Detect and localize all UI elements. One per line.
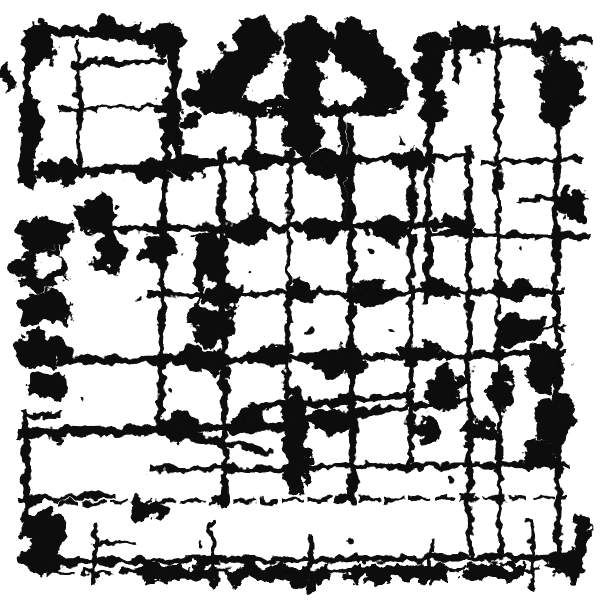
ink-speck (348, 538, 352, 542)
ink-blob (2, 66, 14, 94)
brush-stroke (430, 233, 586, 237)
brush-stroke (212, 525, 214, 586)
ink-speck (78, 398, 82, 402)
ink-speck (388, 328, 392, 332)
grunge-artwork (0, 0, 600, 600)
ink-blob (180, 112, 200, 128)
ink-speck (367, 247, 373, 253)
brush-stroke (455, 24, 457, 82)
ink-speck (478, 58, 482, 62)
brush-stroke (410, 150, 412, 468)
brush-stroke (427, 42, 431, 300)
brush-stroke (222, 150, 225, 502)
brush-stroke (150, 291, 560, 295)
brush-stroke (342, 114, 344, 230)
brush-stroke (173, 36, 178, 170)
ink-blob (556, 53, 584, 97)
brush-stroke (30, 167, 175, 172)
brush-stroke (430, 540, 432, 585)
ink-speck (57, 437, 63, 443)
ink-blob (260, 62, 284, 102)
ink-speck (307, 327, 313, 333)
ink-blob (558, 187, 586, 223)
brush-stroke (78, 42, 80, 168)
brush-stroke (75, 61, 165, 64)
ink-blob (35, 362, 55, 378)
ink-speck (248, 268, 252, 272)
ink-speck (447, 477, 453, 483)
grunge-texture-image (0, 0, 600, 600)
page: { "meta": { "title": "Abstract black and… (0, 0, 600, 600)
ink-blob (36, 256, 60, 274)
brush-stroke (530, 520, 532, 585)
brush-stroke (556, 62, 558, 558)
ink-blob (38, 320, 62, 340)
ink-speck (168, 388, 172, 392)
brush-stroke (26, 414, 58, 418)
ink-blob (17, 217, 73, 253)
ink-blob (416, 418, 444, 442)
ink-patch (465, 564, 525, 578)
brush-stroke (520, 197, 586, 200)
brush-stroke (300, 108, 392, 112)
brush-stroke (287, 142, 290, 405)
ink-speck (397, 137, 403, 143)
brush-stroke (253, 118, 255, 230)
brush-stroke (350, 128, 353, 500)
ink-blob (140, 236, 176, 264)
ink-speck (117, 202, 123, 208)
brush-stroke (93, 525, 95, 585)
brush-stroke (310, 535, 312, 590)
ink-speck (197, 542, 203, 548)
ink-speck (428, 208, 432, 212)
ink-speck (137, 297, 143, 303)
brush-stroke (28, 60, 30, 186)
ink-blob (325, 62, 349, 102)
ink-speck (518, 248, 522, 252)
ink-blob (184, 85, 212, 105)
brush-stroke (483, 159, 580, 162)
brush-stroke (25, 410, 27, 520)
